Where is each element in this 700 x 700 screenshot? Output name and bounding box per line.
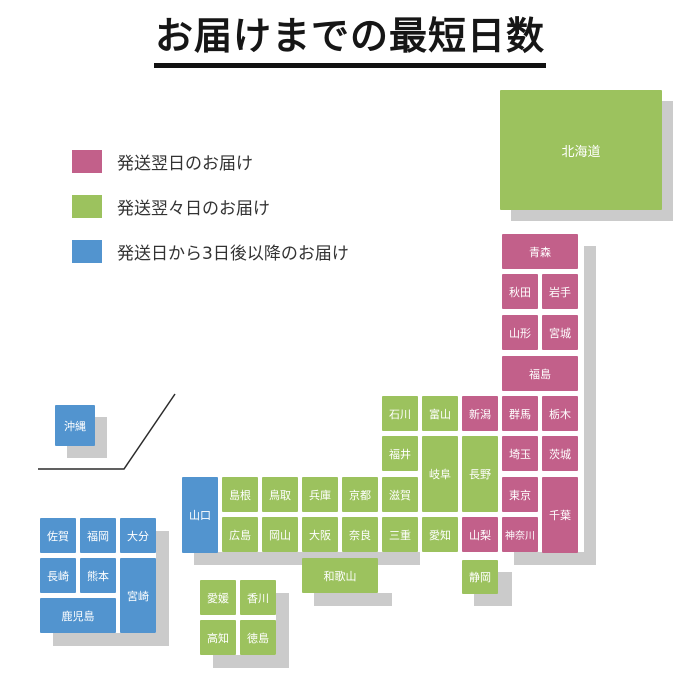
page-title: お届けまでの最短日数 xyxy=(0,14,700,60)
prefecture-nagasaki: 長崎 xyxy=(40,558,76,593)
prefecture-label: 福島 xyxy=(529,366,551,382)
legend: 発送翌日のお届け 発送翌々日のお届け 発送日から3日後以降のお届け xyxy=(72,150,349,285)
prefecture-label: 茨城 xyxy=(549,446,571,462)
prefecture-label: 新潟 xyxy=(469,406,491,422)
prefecture-aichi: 愛知 xyxy=(422,517,458,552)
prefecture-saga: 佐賀 xyxy=(40,518,76,553)
map-shadow xyxy=(514,552,596,565)
prefecture-mie: 三重 xyxy=(382,517,418,552)
prefecture-oita: 大分 xyxy=(120,518,156,553)
prefecture-miyagi: 宮城 xyxy=(542,315,578,350)
prefecture-ibaraki: 茨城 xyxy=(542,436,578,471)
prefecture-tokyo: 東京 xyxy=(502,477,538,512)
prefecture-kagawa: 香川 xyxy=(240,580,276,615)
prefecture-kagoshima: 鹿児島 xyxy=(40,598,116,633)
prefecture-osaka: 大阪 xyxy=(302,517,338,552)
prefecture-label: 石川 xyxy=(389,406,411,422)
legend-item-three-plus-days: 発送日から3日後以降のお届け xyxy=(72,240,349,263)
prefecture-kumamoto: 熊本 xyxy=(80,558,116,593)
prefecture-label: 長崎 xyxy=(47,568,69,584)
prefecture-yamanashi: 山梨 xyxy=(462,517,498,552)
prefecture-label: 山梨 xyxy=(469,527,491,543)
prefecture-fukushima: 福島 xyxy=(502,356,578,391)
prefecture-gunma: 群馬 xyxy=(502,396,538,431)
prefecture-label: 兵庫 xyxy=(309,487,331,503)
prefecture-label: 青森 xyxy=(529,244,551,260)
prefecture-label: 福井 xyxy=(389,446,411,462)
prefecture-yamagata: 山形 xyxy=(502,315,538,350)
prefecture-tokushima: 徳島 xyxy=(240,620,276,655)
prefecture-label: 滋賀 xyxy=(389,487,411,503)
prefecture-okayama: 岡山 xyxy=(262,517,298,552)
legend-label-three-plus-days: 発送日から3日後以降のお届け xyxy=(117,239,349,264)
prefecture-toyama: 富山 xyxy=(422,396,458,431)
prefecture-label: 秋田 xyxy=(509,284,531,300)
prefecture-label: 沖縄 xyxy=(64,418,86,434)
prefecture-kanagawa: 神奈川 xyxy=(502,517,538,552)
prefecture-label: 宮城 xyxy=(549,325,571,341)
prefecture-fukui: 福井 xyxy=(382,436,418,471)
prefecture-label: 岩手 xyxy=(549,284,571,300)
prefecture-label: 大阪 xyxy=(309,527,331,543)
prefecture-saitama: 埼玉 xyxy=(502,436,538,471)
prefecture-okinawa: 沖縄 xyxy=(55,405,95,446)
prefecture-kyoto: 京都 xyxy=(342,477,378,512)
prefecture-gifu: 岐阜 xyxy=(422,436,458,512)
prefecture-chiba: 千葉 xyxy=(542,477,578,553)
prefecture-label: 広島 xyxy=(229,527,251,543)
prefecture-label: 鹿児島 xyxy=(62,608,95,624)
title-block: お届けまでの最短日数 xyxy=(0,0,700,68)
legend-item-next-day: 発送翌日のお届け xyxy=(72,150,349,173)
prefecture-label: 富山 xyxy=(429,406,451,422)
prefecture-label: 京都 xyxy=(349,487,371,503)
prefecture-label: 神奈川 xyxy=(505,527,535,542)
prefecture-tochigi: 栃木 xyxy=(542,396,578,431)
prefecture-label: 岐阜 xyxy=(429,466,451,482)
prefecture-iwate: 岩手 xyxy=(542,274,578,309)
prefecture-label: 大分 xyxy=(127,528,149,544)
prefecture-label: 千葉 xyxy=(549,507,571,523)
prefecture-label: 宮崎 xyxy=(127,588,149,604)
legend-swatch-two-days xyxy=(72,195,102,218)
prefecture-yamaguchi: 山口 xyxy=(182,477,218,553)
title-underline xyxy=(154,63,546,68)
map-shadow xyxy=(314,593,392,606)
prefecture-shizuoka: 静岡 xyxy=(462,560,498,594)
delivery-days-infographic: お届けまでの最短日数 発送翌日のお届け 発送翌々日のお届け 発送日から3日後以降… xyxy=(0,0,700,700)
prefecture-label: 香川 xyxy=(247,590,269,606)
prefecture-label: 三重 xyxy=(389,527,411,543)
legend-item-two-days: 発送翌々日のお届け xyxy=(72,195,349,218)
prefecture-label: 佐賀 xyxy=(47,528,69,544)
prefecture-label: 愛知 xyxy=(429,527,451,543)
prefecture-ishikawa: 石川 xyxy=(382,396,418,431)
prefecture-label: 熊本 xyxy=(87,568,109,584)
prefecture-label: 徳島 xyxy=(247,630,269,646)
prefecture-label: 福岡 xyxy=(87,528,109,544)
prefecture-tottori: 鳥取 xyxy=(262,477,298,512)
prefecture-label: 栃木 xyxy=(549,406,571,422)
legend-label-two-days: 発送翌々日のお届け xyxy=(117,194,270,219)
map-shadow xyxy=(584,246,596,565)
prefecture-label: 静岡 xyxy=(469,569,491,585)
prefecture-niigata: 新潟 xyxy=(462,396,498,431)
prefecture-kochi: 高知 xyxy=(200,620,236,655)
prefecture-label: 奈良 xyxy=(349,527,371,543)
prefecture-label: 群馬 xyxy=(509,406,531,422)
prefecture-label: 長野 xyxy=(469,466,491,482)
legend-swatch-next-day xyxy=(72,150,102,173)
prefecture-ehime: 愛媛 xyxy=(200,580,236,615)
prefecture-nagano: 長野 xyxy=(462,436,498,512)
prefecture-label: 和歌山 xyxy=(324,568,357,584)
prefecture-akita: 秋田 xyxy=(502,274,538,309)
prefecture-nara: 奈良 xyxy=(342,517,378,552)
prefecture-label: 鳥取 xyxy=(269,487,291,503)
prefecture-aomori: 青森 xyxy=(502,234,578,269)
prefecture-label: 北海道 xyxy=(561,141,600,160)
prefecture-shimane: 島根 xyxy=(222,477,258,512)
prefecture-miyazaki: 宮崎 xyxy=(120,558,156,633)
legend-swatch-three-plus-days xyxy=(72,240,102,263)
prefecture-label: 愛媛 xyxy=(207,590,229,606)
prefecture-label: 埼玉 xyxy=(509,446,531,462)
prefecture-label: 東京 xyxy=(509,487,531,503)
prefecture-label: 山口 xyxy=(189,507,211,523)
prefecture-hokkaido: 北海道 xyxy=(500,90,662,210)
prefecture-label: 岡山 xyxy=(269,527,291,543)
prefecture-wakayama: 和歌山 xyxy=(302,558,378,593)
prefecture-hyogo: 兵庫 xyxy=(302,477,338,512)
prefecture-label: 高知 xyxy=(207,630,229,646)
prefecture-label: 山形 xyxy=(509,325,531,341)
legend-label-next-day: 発送翌日のお届け xyxy=(117,149,253,174)
prefecture-label: 島根 xyxy=(229,487,251,503)
prefecture-hiroshima: 広島 xyxy=(222,517,258,552)
prefecture-shiga: 滋賀 xyxy=(382,477,418,512)
prefecture-fukuoka: 福岡 xyxy=(80,518,116,553)
